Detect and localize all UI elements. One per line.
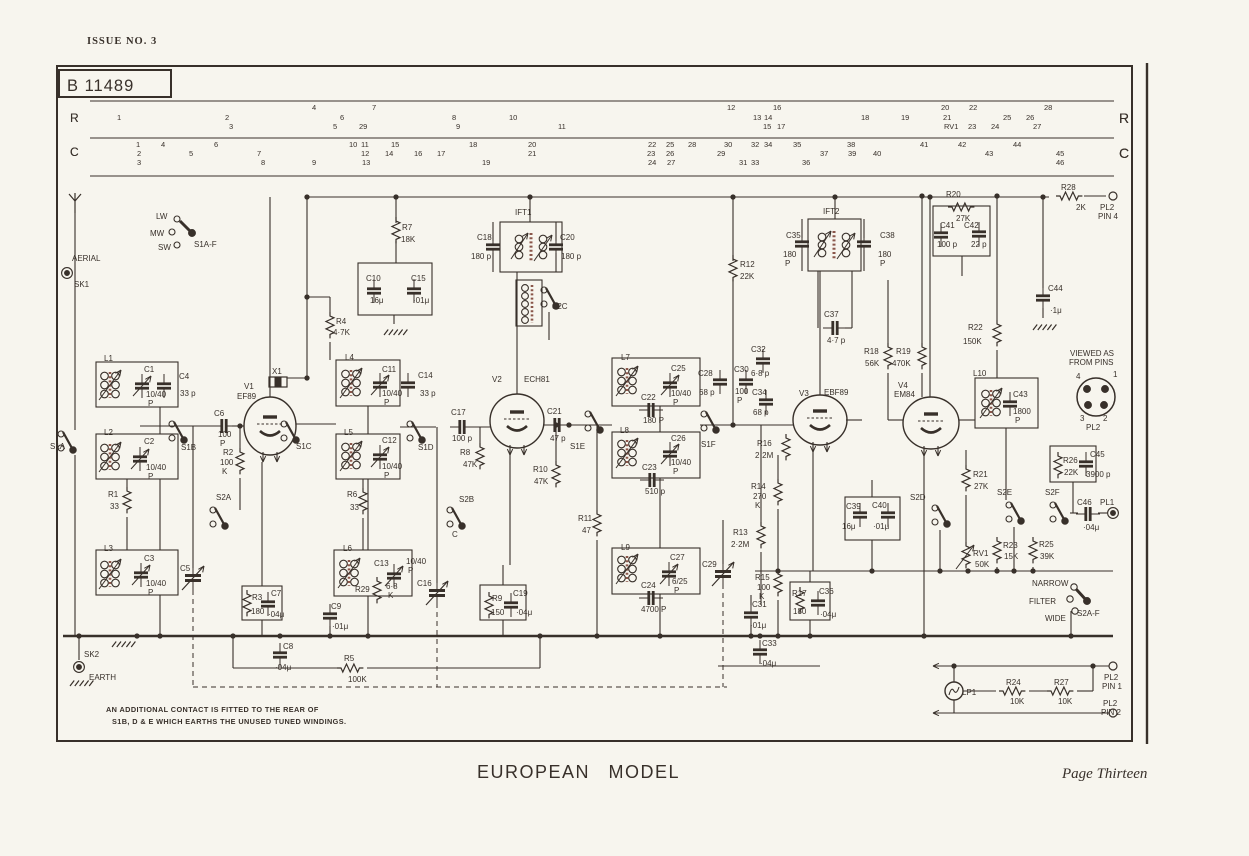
component-id: R15 [755,573,770,582]
ruler-c-number: 44 [1013,140,1021,149]
component-value: 150 [491,608,505,617]
component-id: L1 [104,354,113,363]
text-label: V3 [799,389,809,398]
component-C25: C2510/40P [661,364,692,407]
component-value: 22K [740,272,755,281]
ruler-c-number: 22 [648,140,656,149]
component-R16: R162·2M [755,434,790,460]
ruler-c-number: 39 [848,149,856,158]
text-label: EM84 [894,390,915,399]
ruler-c-number: 15 [391,140,399,149]
ruler-c-number: 10 [349,140,357,149]
component-id: R18 [864,347,879,356]
ruler-r-number: 5 [333,122,337,131]
component-C35: C35180P [783,231,809,268]
component-C6: C6100P [212,409,236,448]
component-R29: R296·8K [355,577,398,603]
component-id: R23 [1003,541,1018,550]
symbol-term [1109,662,1117,670]
component-R28: R282K [1056,183,1086,212]
component-L10: L10 [973,369,1002,418]
component-value: 33 [110,502,119,511]
component-id: C20 [560,233,575,242]
ruler-r-number: 7 [372,103,376,112]
component-id: C37 [824,310,839,319]
ruler-r-number: 21 [943,113,951,122]
symbol-tube [490,394,544,455]
text-label: SW [158,243,171,252]
component-value: 33 p [180,389,196,398]
text-label: ECH81 [524,375,550,384]
component-RV1: RV150K [956,542,990,569]
component-value: 180 [793,607,807,616]
component-value: 10/40P [671,389,692,407]
ruler-c-number: 12 [361,149,369,158]
component-value: 33 p [420,389,436,398]
text-label: 1 [1113,370,1118,379]
component-id: R6 [347,490,358,499]
component-C15: C15·01μ [407,274,430,305]
component-C28: C2868 p [698,369,727,397]
component-value: 15K [1004,552,1019,561]
component-R13: R132·2M [731,522,765,549]
component-C32: C326·8 p [751,345,770,378]
text-label: WIDE [1045,614,1066,623]
symbol-sw [932,505,950,527]
component-id: C11 [382,365,397,374]
component-id: R8 [460,448,471,457]
text-label: IFT2 [823,207,840,216]
ruler-c-number: 16 [414,149,422,158]
component-C46: C46·04μ [1076,498,1100,532]
text-label: EBF89 [824,388,849,397]
component-value: 100P [218,430,232,448]
text-label: FILTER [1029,597,1056,606]
text-label: V4 [898,381,908,390]
text-label: S2D [910,493,926,502]
ruler-c-number: 30 [724,140,732,149]
component-id: R10 [533,465,548,474]
ruler-r-number: 2 [225,113,229,122]
component-value: 47 [582,526,591,535]
ruler-r-number: 10 [509,113,517,122]
component-R9: R9150 [485,592,505,618]
component-id: C5 [180,564,191,573]
ruler-c-number: 42 [958,140,966,149]
component-id: C33 [762,639,777,648]
ruler-c-number: 14 [385,149,393,158]
component-id: C10 [366,274,381,283]
component-id: C31 [752,600,767,609]
ruler-r-number: 1 [117,113,121,122]
component-id: R4 [336,317,347,326]
ruler-r-number: 12 [727,103,735,112]
ruler-c-number: 25 [666,140,674,149]
component-value: ·1μ [1050,306,1062,315]
component-value: 10/40P [406,557,427,575]
component-C45: C453900 p [1079,450,1111,479]
text-label: PIN 1 [1102,682,1123,691]
component-value: 180P [783,250,797,268]
component-C7: C7·04μ [261,589,285,619]
component-id: C22 [641,393,656,402]
component-C29: C29 [702,560,734,588]
component-C41: C41100 p [934,221,958,249]
component-C19: C19·04μ [504,589,533,617]
ruler-c-number: 13 [362,158,370,167]
component-id: C17 [451,408,466,417]
component-id: R17 [792,589,807,598]
component-L3: L3 [99,544,121,589]
component-R22: R22150K [963,320,1001,346]
component-value: ·01μ [750,621,767,630]
component-value: ·01μ [332,622,349,631]
symbol-jack [74,662,85,673]
component-id: C13 [374,559,389,568]
component-id: C39 [846,502,861,511]
ruler-c-number: 17 [437,149,445,158]
text-label: C [1119,145,1129,161]
symbol-gnd [1033,325,1056,331]
text-label: S1D [418,443,434,452]
component-value: 100 p [452,434,473,443]
text-label: S1A [50,442,66,451]
component-C31: C31·01μ [744,600,767,630]
component-R11: R1147 [578,510,601,536]
component-id: R11 [578,514,593,523]
ruler-r-number: 20 [941,103,949,112]
text-label: PL2 [1086,423,1101,432]
ruler-r-number: 27 [1033,122,1041,131]
component-id: C36 [819,587,834,596]
text-label: S1C [296,442,312,451]
text-label: NARROW [1032,579,1069,588]
component-id: C28 [698,369,713,378]
text-label: X1 [272,367,282,376]
text-label: S2A-F [1077,609,1100,618]
component-value: 33 [350,503,359,512]
component-id: C44 [1048,284,1063,293]
symbol-iftsec [522,285,532,324]
component-id: C16 [417,579,432,588]
ruler-c-number: 27 [667,158,675,167]
ruler-r-number: 16 [773,103,781,112]
component-R23: R2315K [993,537,1019,563]
component-C27: C276/25P [660,553,688,595]
component-id: R22 [968,323,983,332]
component-R2: R2100K [220,448,244,476]
component-R5: R5100K [337,654,367,684]
component-id: C3 [144,554,155,563]
component-id: C24 [641,581,656,590]
text-label: PL2 [1100,203,1115,212]
ruler-c-number: 35 [793,140,801,149]
text-label: S2E [997,488,1012,497]
component-R1: R133 [108,487,131,513]
component-id: C4 [179,372,190,381]
component-id: R27 [1054,678,1069,687]
component-value: 56K [865,359,880,368]
component-value: 4·7 p [827,336,846,345]
component-id: C42 [964,221,979,230]
component-R14: R14270K [751,479,782,510]
component-C42: C4222 p [964,221,987,249]
ruler-r-number: 14 [764,113,772,122]
component-value: 10/40P [146,579,167,597]
ruler-c-number: 24 [648,158,656,167]
component-C40: C40·01μ [872,501,895,531]
component-id: R19 [896,347,911,356]
wiring [63,194,1113,716]
note-line-2: S1B, D & E WHICH EARTHS THE UNUSED TUNED… [112,717,346,726]
ruler-r-number: 29 [359,122,367,131]
component-value: ·04μ [820,610,837,619]
component-value: 150K [963,337,982,346]
component-id: R1 [108,490,119,499]
component-R25: R2539K [1029,537,1055,563]
component-id: C8 [283,642,294,651]
component-ruler: RCRC12345629789101112131415161718192021R… [70,103,1129,167]
component-R7: R718K [392,217,416,244]
component-value: 16μ [842,522,856,531]
component-id: C25 [671,364,686,373]
component-R4: R44·7K [326,312,351,338]
symbol-sw [210,507,228,529]
component-C3: C310/40P [132,554,167,597]
component-C33: C33·04μ [753,639,777,668]
text-label: 2 [1103,414,1108,423]
ruler-c-number: 31 [739,158,747,167]
component-value: 510 p [645,487,666,496]
ruler-c-number: 19 [482,158,490,167]
component-value: 22 p [971,240,987,249]
component-value: 4·7K [333,328,351,337]
component-C8: C8·04μ [273,642,294,672]
component-value: ·04μ [1083,523,1100,532]
ruler-r-number: 19 [901,113,909,122]
component-value: ·04μ [516,608,533,617]
text-label: LW [156,212,168,221]
component-C11: C1110/40P [371,365,403,407]
ruler-r-number: 22 [969,103,977,112]
schematic-canvas: ISSUE NO. 3 B 11489 EUROPEAN MODEL Page … [0,0,1249,856]
note-line-1: AN ADDITIONAL CONTACT IS FITTED TO THE R… [106,705,319,714]
component-id: R25 [1039,540,1054,549]
ruler-c-number: 1 [136,140,140,149]
component-value: 39K [1040,552,1055,561]
component-id: R26 [1063,456,1078,465]
component-value: 16μ [370,296,384,305]
component-R10: R1047K [533,461,560,487]
component-value: 6·8K [386,582,398,600]
component-value: 47K [463,460,478,469]
component-C16: C16 [417,579,448,607]
component-id: R2 [223,448,234,457]
component-id: C40 [872,501,887,510]
component-R15: R15100K [755,570,782,601]
ruler-c-number: 34 [764,140,772,149]
component-R24: R2410K [999,678,1025,706]
symbol-term [1109,192,1117,200]
component-R27: R2710K [1047,678,1073,706]
component-value: 18K [401,235,416,244]
component-id: C30 [734,365,749,374]
text-label: PL2 [1103,699,1118,708]
component-value: ·04μ [275,663,292,672]
issue-label: ISSUE NO. 3 [87,36,157,47]
component-R3: R3180 [243,590,265,616]
symbol-ift [511,233,552,261]
ruler-r-number: 9 [456,122,460,131]
component-id: L8 [620,426,629,435]
component-id: C45 [1090,450,1105,459]
ruler-r-number: 6 [340,113,344,122]
symbol-jack [62,268,73,279]
component-C26: C2610/40P [661,434,692,476]
component-C36: C36·04μ [811,587,837,619]
component-id: C21 [547,407,562,416]
symbol-gnd [112,642,135,648]
component-id: C15 [411,274,426,283]
text-label: FROM PINS [1069,358,1113,367]
component-value: ·04μ [760,659,777,668]
component-id: C2 [144,437,155,446]
ruler-r-number: 23 [968,122,976,131]
component-id: R9 [492,594,503,603]
text-label: R [1119,110,1129,126]
ruler-c-number: 8 [261,158,265,167]
component-L7: L7 [616,353,638,396]
component-C18: C18180 p [471,233,500,261]
component-R21: R2127K [962,465,989,491]
text-label: C [70,145,79,159]
ruler-r-number: 15 [763,122,771,131]
ruler-c-number: 5 [189,149,193,158]
symbol-ant [69,193,81,213]
component-R17: R17180 [792,587,807,616]
component-id: R20 [946,190,961,199]
text-label: PL1 [1100,498,1115,507]
component-id: C18 [477,233,492,242]
component-value: 6·8 p [751,369,770,378]
component-id: C34 [752,388,767,397]
symbol-gnd [384,330,407,336]
ruler-r-number: 25 [1003,113,1011,122]
text-label: PIN 4 [1098,212,1119,221]
ruler-c-number: 7 [257,149,261,158]
component-id: L3 [104,544,113,553]
text-label: V2 [492,375,502,384]
component-value: 10/40P [146,390,167,408]
ruler-r-number: 3 [229,122,233,131]
component-C23: C23510 p [640,463,666,496]
component-value: 180P [878,250,892,268]
component-value: 68 p [699,388,715,397]
component-value: 10/40P [146,463,167,481]
text-label: LP1 [962,688,977,697]
component-id: L6 [343,544,352,553]
component-R8: R847K [460,443,484,469]
component-value: 1800P [1013,407,1031,425]
component-id: C41 [940,221,955,230]
component-id: C19 [513,589,528,598]
text-label: PL2 [1104,673,1119,682]
component-id: RV1 [973,549,989,558]
component-id: C14 [418,371,433,380]
ruler-c-number: 45 [1056,149,1064,158]
component-value: 10/40P [671,458,692,476]
ruler-c-number: 21 [528,149,536,158]
component-C34: C3468 p [752,388,773,417]
text-label: S1E [570,442,585,451]
ruler-c-number: 36 [802,158,810,167]
component-value: 100K [220,458,234,476]
ruler-r-number: RV1 [944,122,958,131]
text-label: IFT1 [515,208,532,217]
ruler-r-number: 13 [753,113,761,122]
component-id: R5 [344,654,355,663]
component-id: C12 [382,436,397,445]
component-value: 47K [534,477,549,486]
symbol-xt [269,377,287,387]
symbol-tube [793,395,847,452]
component-value: 4700 P [641,605,666,614]
ruler-c-number: 9 [312,158,316,167]
ruler-c-number: 18 [469,140,477,149]
symbol-pinview [1077,378,1115,416]
symbol-sw [447,507,465,529]
ruler-c-number: 23 [647,149,655,158]
text-label: PIN 2 [1101,708,1122,717]
component-value: 180 P [643,416,664,425]
text-label: S2F [1045,488,1060,497]
component-value: ·04μ [268,610,285,619]
component-C20: C20180 p [549,233,582,261]
drawing-number: B 11489 [67,77,134,95]
component-id: R21 [973,470,988,479]
component-value: 47 p [550,434,566,443]
symbol-tube [903,397,959,456]
component-R26: R2622K [1054,452,1079,478]
component-id: C1 [144,365,155,374]
text-label: S1F [701,440,716,449]
component-L2: L2 [99,428,121,472]
component-id: R29 [355,585,370,594]
component-id: C32 [751,345,766,354]
component-C2: C210/40P [131,437,167,481]
text-label: SK1 [74,280,90,289]
component-C43: C431800P [1003,390,1031,425]
component-L9: L9 [616,543,638,584]
component-id: C35 [786,231,801,240]
component-C24: C244700 P [639,581,666,614]
component-id: R14 [751,482,766,491]
ruler-c-number: 32 [751,140,759,149]
component-id: L9 [621,543,630,552]
component-id: L7 [621,353,630,362]
component-L1: L1 [99,354,121,400]
component-C5: C5 [180,564,204,592]
component-value: 180 p [471,252,492,261]
component-value: ·01μ [413,296,430,305]
component-value: 2·2M [755,451,774,460]
component-value: 10K [1010,697,1025,706]
text-label: VIEWED AS [1070,349,1114,358]
component-value: 100 p [937,240,958,249]
symbol-sw [407,421,425,443]
component-C38: C38180P [857,231,895,268]
component-id: C26 [671,434,686,443]
